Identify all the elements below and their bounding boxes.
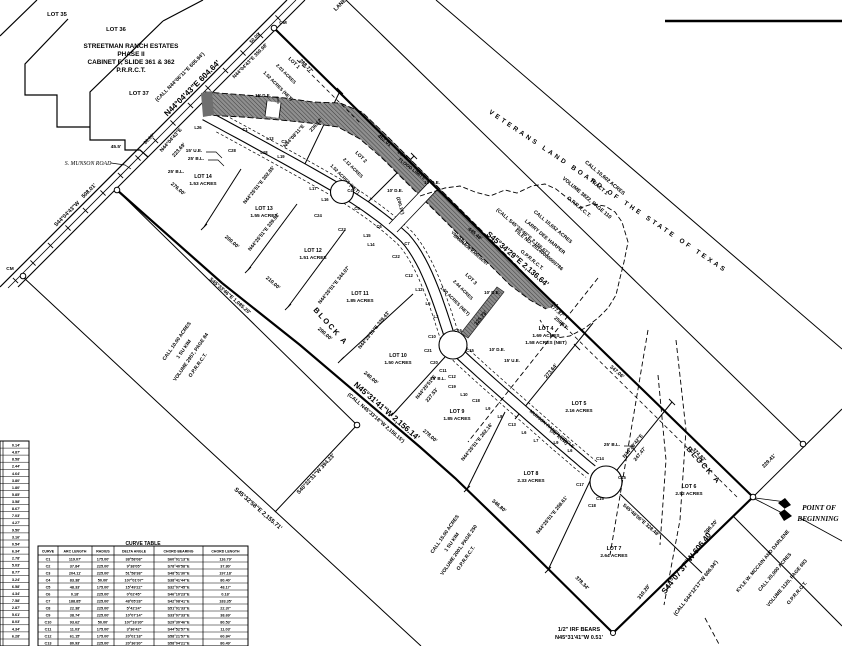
svg-text:L7: L7 [534, 438, 540, 443]
svg-text:C24: C24 [314, 213, 322, 218]
svg-text:5°42'24": 5°42'24" [127, 607, 142, 611]
svg-text:CHORD LENGTH: CHORD LENGTH [211, 550, 240, 554]
svg-text:2.78': 2.78' [12, 557, 20, 561]
svg-text:S58°21'57"E: S58°21'57"E [168, 635, 190, 639]
svg-text:15' D.E.: 15' D.E. [255, 93, 271, 98]
svg-text:L5: L5 [426, 301, 432, 306]
svg-text:L9: L9 [486, 406, 492, 411]
svg-text:2.87': 2.87' [12, 606, 20, 610]
svg-text:225.00': 225.00' [97, 642, 110, 646]
svg-text:C13: C13 [508, 422, 516, 427]
svg-text:S32°07'45"E: S32°07'45"E [168, 586, 190, 590]
svg-text:L26: L26 [194, 125, 202, 130]
svg-text:15°49'22": 15°49'22" [126, 586, 143, 590]
svg-text:4.64': 4.64' [12, 472, 20, 476]
svg-text:L13: L13 [266, 136, 274, 141]
svg-text:38.74': 38.74' [70, 614, 81, 618]
svg-text:C15: C15 [466, 348, 474, 353]
svg-text:37.84': 37.84' [70, 565, 81, 569]
svg-text:C11: C11 [45, 628, 52, 632]
svg-text:LOT 4: LOT 4 [539, 326, 554, 332]
svg-text:9.50': 9.50' [12, 528, 20, 532]
svg-text:P.R.R.C.T.: P.R.R.C.T. [116, 67, 146, 74]
svg-text:0°02'45": 0°02'45" [127, 593, 142, 597]
svg-text:183.35': 183.35' [219, 600, 232, 604]
svg-text:C6: C6 [376, 224, 382, 229]
svg-text:C8: C8 [46, 607, 51, 611]
svg-text:1.85 ACRES: 1.85 ACRES [443, 416, 471, 422]
svg-text:5.61': 5.61' [12, 613, 20, 617]
svg-text:51°58'38": 51°58'38" [126, 572, 143, 576]
svg-text:22.37': 22.37' [220, 607, 231, 611]
svg-text:S51°01'33"E: S51°01'33"E [168, 607, 190, 611]
svg-text:0.14': 0.14' [12, 443, 20, 447]
svg-text:83.38': 83.38' [70, 579, 81, 583]
svg-text:10' D.E.: 10' D.E. [387, 188, 403, 193]
svg-text:S78°40'58"E: S78°40'58"E [168, 565, 190, 569]
svg-text:L19: L19 [277, 154, 285, 159]
svg-text:6.58': 6.58' [12, 585, 20, 589]
svg-text:225.00': 225.00' [97, 607, 110, 611]
svg-text:11.03': 11.03' [70, 628, 80, 632]
svg-text:L6: L6 [522, 430, 528, 435]
svg-text:1.85 ACRES: 1.85 ACRES [346, 298, 374, 304]
svg-text:L14: L14 [367, 242, 375, 247]
svg-text:C7: C7 [404, 241, 410, 246]
svg-text:L3: L3 [434, 314, 440, 319]
svg-text:225.00': 225.00' [97, 593, 110, 597]
svg-text:C16: C16 [596, 496, 604, 501]
svg-text:37.80': 37.80' [220, 565, 231, 569]
svg-text:S46°10'23"E: S46°10'23"E [168, 593, 190, 597]
svg-text:1.80': 1.80' [12, 486, 20, 490]
svg-text:PHASE II: PHASE II [117, 51, 145, 58]
svg-text:L6: L6 [568, 448, 574, 453]
svg-text:C4: C4 [347, 188, 353, 193]
svg-text:25' B.L.: 25' B.L. [168, 169, 184, 174]
svg-text:197.18': 197.18' [219, 572, 232, 576]
svg-text:175.00': 175.00' [97, 635, 110, 639]
svg-text:C21: C21 [424, 348, 432, 353]
svg-text:188.85': 188.85' [69, 600, 82, 604]
svg-text:L9: L9 [554, 440, 560, 445]
svg-text:3.16': 3.16' [12, 535, 20, 539]
svg-text:S48°51'30"E: S48°51'30"E [168, 572, 190, 576]
svg-text:204.11': 204.11' [69, 572, 81, 576]
svg-text:225.00': 225.00' [97, 614, 110, 618]
svg-text:48.33': 48.33' [70, 586, 81, 590]
svg-text:LOT 37: LOT 37 [129, 91, 149, 97]
svg-text:22.38': 22.38' [70, 607, 81, 611]
svg-text:LOT 5: LOT 5 [572, 401, 587, 407]
svg-text:1.53 ACRES: 1.53 ACRES [189, 181, 217, 187]
svg-text:2.44': 2.44' [12, 465, 20, 469]
svg-text:225.00': 225.00' [97, 600, 110, 604]
svg-text:7.58': 7.58' [12, 599, 20, 603]
svg-text:C3: C3 [46, 572, 51, 576]
svg-text:8.77': 8.77' [12, 571, 20, 575]
svg-text:15' U.E.: 15' U.E. [186, 148, 202, 153]
svg-text:3.80': 3.80' [12, 479, 20, 483]
svg-text:LOT 6: LOT 6 [682, 484, 697, 490]
svg-text:RADIUS: RADIUS [96, 550, 110, 554]
svg-text:C1: C1 [242, 127, 248, 132]
svg-text:1.58 ACRES (NET): 1.58 ACRES (NET) [525, 340, 567, 346]
svg-text:C11: C11 [439, 368, 447, 373]
svg-text:0.18': 0.18' [71, 593, 79, 597]
svg-text:DELTA ANGLE: DELTA ANGLE [122, 550, 147, 554]
svg-text:LOT 36: LOT 36 [106, 27, 126, 33]
svg-text:C12: C12 [405, 273, 413, 278]
svg-text:S44°52'57"E: S44°52'57"E [168, 628, 190, 632]
svg-text:10' D.E.: 10' D.E. [424, 180, 440, 185]
svg-text:LOT 10: LOT 10 [389, 353, 407, 359]
svg-text:0.54': 0.54' [12, 542, 20, 546]
svg-text:107°01'07": 107°01'07" [124, 579, 143, 583]
svg-text:25' B.L.: 25' B.L. [430, 376, 445, 381]
svg-text:C5: C5 [354, 206, 360, 211]
svg-text:4.27': 4.27' [12, 521, 20, 525]
svg-text:80.49': 80.49' [220, 642, 231, 646]
svg-text:80.40': 80.40' [220, 579, 231, 583]
svg-text:S29°30'46"E: S29°30'46"E [168, 621, 190, 625]
svg-text:CURVE: CURVE [42, 550, 55, 554]
svg-text:L17: L17 [309, 186, 317, 191]
svg-text:1.51 ACRES: 1.51 ACRES [299, 255, 327, 261]
svg-text:80.93': 80.93' [70, 642, 81, 646]
svg-text:6.34': 6.34' [12, 550, 20, 554]
svg-text:C10: C10 [428, 334, 436, 339]
svg-text:C15: C15 [618, 475, 626, 480]
svg-text:S33°07'33"E: S33°07'33"E [168, 614, 190, 618]
svg-text:1.69 ACRES: 1.69 ACRES [532, 333, 560, 339]
svg-text:C1: C1 [46, 558, 51, 562]
svg-text:8.67': 8.67' [12, 507, 20, 511]
svg-text:4.34': 4.34' [12, 592, 20, 596]
svg-text:POINT OF: POINT OF [802, 504, 836, 512]
svg-text:C7: C7 [46, 600, 51, 604]
svg-text:S. MUNSON ROAD: S. MUNSON ROAD [65, 161, 112, 167]
svg-text:C12: C12 [448, 374, 456, 379]
svg-text:C9: C9 [46, 614, 51, 618]
svg-text:80.53': 80.53' [220, 621, 231, 625]
svg-text:C28: C28 [228, 148, 236, 153]
svg-text:BEGINNING: BEGINNING [796, 515, 839, 523]
svg-text:0.18': 0.18' [221, 593, 229, 597]
svg-text:C22: C22 [392, 254, 400, 259]
svg-text:5.03': 5.03' [12, 564, 20, 568]
svg-text:ARC LENGTH: ARC LENGTH [64, 550, 87, 554]
svg-text:C6: C6 [46, 593, 51, 597]
svg-text:38.69': 38.69' [220, 614, 231, 618]
svg-text:225.00': 225.00' [97, 572, 110, 576]
svg-text:107°16'30": 107°16'30" [124, 621, 143, 625]
svg-text:4.87': 4.87' [12, 451, 20, 455]
svg-text:2.64 ACRES: 2.64 ACRES [600, 553, 628, 559]
svg-text:L10: L10 [460, 392, 468, 397]
svg-text:L12: L12 [415, 287, 423, 292]
svg-text:48.17': 48.17' [220, 586, 231, 590]
svg-text:175.00': 175.00' [97, 558, 110, 562]
svg-text:50.00': 50.00' [98, 579, 109, 583]
svg-text:2.52 ACRES: 2.52 ACRES [675, 491, 703, 497]
svg-text:1.55 ACRES: 1.55 ACRES [250, 213, 278, 219]
svg-text:C17: C17 [576, 482, 584, 487]
svg-text:10' D.E.: 10' D.E. [489, 347, 505, 352]
svg-text:116.79': 116.79' [219, 558, 231, 562]
svg-text:8.58': 8.58' [12, 458, 20, 462]
svg-text:N45°31'41"W 0.51': N45°31'41"W 0.51' [555, 635, 604, 641]
svg-text:C20: C20 [430, 360, 438, 365]
svg-text:C2: C2 [281, 139, 287, 144]
svg-text:CABINET F, SLIDE 361 & 362: CABINET F, SLIDE 361 & 362 [87, 59, 174, 66]
svg-text:C13: C13 [45, 642, 52, 646]
svg-text:25' B.L.: 25' B.L. [604, 442, 620, 447]
svg-text:LOT 7: LOT 7 [607, 546, 622, 552]
svg-text:38°58'08": 38°58'08" [126, 558, 143, 562]
svg-text:5.85': 5.85' [12, 493, 20, 497]
svg-text:S38°41'44"E: S38°41'44"E [168, 579, 190, 583]
svg-text:LOT 11: LOT 11 [351, 291, 368, 297]
svg-text:STREETMAN RANCH ESTATES: STREETMAN RANCH ESTATES [84, 43, 180, 50]
svg-text:7.03': 7.03' [12, 514, 20, 518]
svg-text:CM: CM [279, 20, 286, 26]
svg-text:L18: L18 [260, 150, 268, 155]
svg-text:CHORD BEARING: CHORD BEARING [164, 550, 194, 554]
svg-text:119.07': 119.07' [69, 558, 81, 562]
svg-text:8.03': 8.03' [12, 620, 20, 624]
svg-text:45.5': 45.5' [111, 144, 121, 150]
svg-text:C23: C23 [338, 227, 346, 232]
svg-text:LOT 9: LOT 9 [450, 409, 465, 415]
svg-text:20°01'18": 20°01'18" [126, 635, 143, 639]
svg-text:175.00': 175.00' [97, 586, 110, 590]
svg-text:20°36'30": 20°36'30" [126, 642, 143, 646]
svg-text:C5: C5 [46, 586, 51, 590]
svg-text:LOT 12: LOT 12 [304, 248, 322, 254]
svg-text:175.00': 175.00' [97, 628, 110, 632]
svg-text:S42°08'41"E: S42°08'41"E [168, 600, 190, 604]
svg-text:2.33 ACRES: 2.33 ACRES [517, 478, 545, 484]
svg-text:S60°01'13"E: S60°01'13"E [168, 558, 190, 562]
svg-text:C14: C14 [596, 456, 604, 461]
svg-text:225.00': 225.00' [97, 565, 110, 569]
svg-text:10' D.E.: 10' D.E. [484, 290, 500, 295]
svg-text:10°07'14": 10°07'14" [126, 614, 143, 618]
svg-text:61.15': 61.15' [70, 635, 81, 639]
svg-text:60.84': 60.84' [220, 635, 231, 639]
svg-text:C18: C18 [472, 398, 480, 403]
svg-text:LOT 8: LOT 8 [524, 471, 539, 477]
svg-text:LOT 14: LOT 14 [194, 174, 212, 180]
svg-text:48°05'28": 48°05'28" [126, 600, 143, 604]
svg-text:C10: C10 [45, 621, 52, 625]
svg-text:CM: CM [6, 266, 13, 272]
svg-text:LOT 13: LOT 13 [255, 206, 273, 212]
svg-text:C19: C19 [448, 384, 456, 389]
svg-text:C16: C16 [454, 328, 462, 333]
svg-text:3.58': 3.58' [12, 500, 20, 504]
svg-text:3.24': 3.24' [12, 578, 20, 582]
svg-text:9°38'05": 9°38'05" [127, 565, 142, 569]
svg-text:L16: L16 [321, 197, 329, 202]
svg-text:C12: C12 [45, 635, 52, 639]
svg-text:11.03': 11.03' [220, 628, 230, 632]
svg-text:L15: L15 [363, 233, 371, 238]
svg-text:3°36'42": 3°36'42" [127, 628, 142, 632]
svg-text:6.28': 6.28' [12, 634, 20, 638]
svg-text:2.16 ACRES: 2.16 ACRES [565, 408, 593, 414]
svg-text:1.50 ACRES: 1.50 ACRES [384, 360, 412, 366]
svg-text:4.34': 4.34' [12, 627, 20, 631]
svg-text:25' B.L.: 25' B.L. [188, 156, 204, 161]
svg-text:LOT 35: LOT 35 [47, 12, 67, 18]
svg-text:15' U.E.: 15' U.E. [504, 358, 520, 363]
svg-text:C2: C2 [46, 565, 51, 569]
svg-text:50.00': 50.00' [98, 621, 109, 625]
svg-text:1/2" IRF BEARS: 1/2" IRF BEARS [558, 627, 600, 633]
svg-text:L8: L8 [498, 414, 504, 419]
svg-text:C18: C18 [588, 503, 596, 508]
svg-text:S58°04'21"E: S58°04'21"E [168, 642, 190, 646]
svg-text:93.62': 93.62' [70, 621, 81, 625]
